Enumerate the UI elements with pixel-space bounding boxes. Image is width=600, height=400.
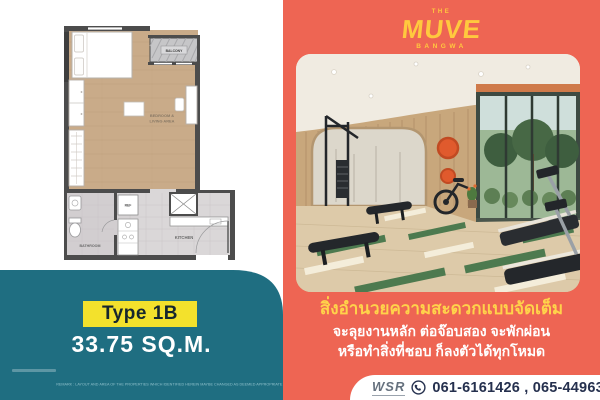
mirror-arch [312, 128, 426, 206]
balcony-label: BALCONY [166, 49, 184, 53]
wall-light [438, 138, 458, 158]
floorplan-panel: BALCONY [0, 0, 283, 400]
promo-subline-1: จะลุยงานหลัก ต่อจ๊อบสอง จะพักผ่อน [283, 323, 600, 340]
floor-plan: BALCONY [62, 22, 238, 264]
kitchen-label: KITCHEN [175, 235, 194, 240]
wsr-logo: WSR [372, 380, 405, 396]
contact-bar: WSR 061-6161426 , 065-4496399 [350, 375, 600, 400]
bedroom-living-label-2: LIVING AREA [150, 119, 175, 124]
fine-print-mark [12, 369, 56, 372]
desk [186, 86, 197, 124]
wall-light [441, 169, 455, 183]
chair [175, 98, 184, 111]
gym-photo [296, 54, 580, 292]
closet [69, 80, 84, 126]
promo-panel: THE MUVE BANGWA [283, 0, 600, 400]
promo-subline-2: หรือทำสิ่งที่ชอบ ก็ลงตัวได้ทุกโหมด [283, 343, 600, 360]
refrigerator: REF [118, 195, 138, 215]
phone-numbers: 061-6161426 , 065-4496399 [432, 380, 600, 396]
gym-scene [296, 54, 580, 292]
promo-headline: สิ่งอำนวยความสะดวกแบบจัดเต็ม [283, 299, 600, 319]
brand-logo: THE MUVE BANGWA [283, 9, 600, 51]
flyer-canvas: BALCONY [0, 0, 600, 400]
unit-type-badge: Type 1B [83, 301, 197, 327]
bathroom-label: BATHROOM [80, 244, 101, 248]
logo-subtitle: BANGWA [283, 44, 600, 51]
wardrobe [69, 130, 84, 186]
ref-label: REF [125, 204, 132, 208]
bedroom-living-label-1: BEDROOM & [150, 113, 174, 118]
balcony-area: BALCONY [150, 38, 198, 62]
promo-copy: สิ่งอำนวยความสะดวกแบบจัดเต็ม จะลุยงานหลั… [283, 299, 600, 360]
phone-icon [411, 380, 426, 395]
disclaimer-text: REMARK : LAYOUT AND AREA OF THE PROPERTI… [56, 383, 227, 387]
bed [72, 32, 132, 78]
unit-area-text: 33.75 SQ.M. [0, 331, 283, 358]
logo-name: MUVE [401, 16, 483, 42]
coffee-table [124, 102, 144, 116]
weight-stack [336, 160, 349, 198]
